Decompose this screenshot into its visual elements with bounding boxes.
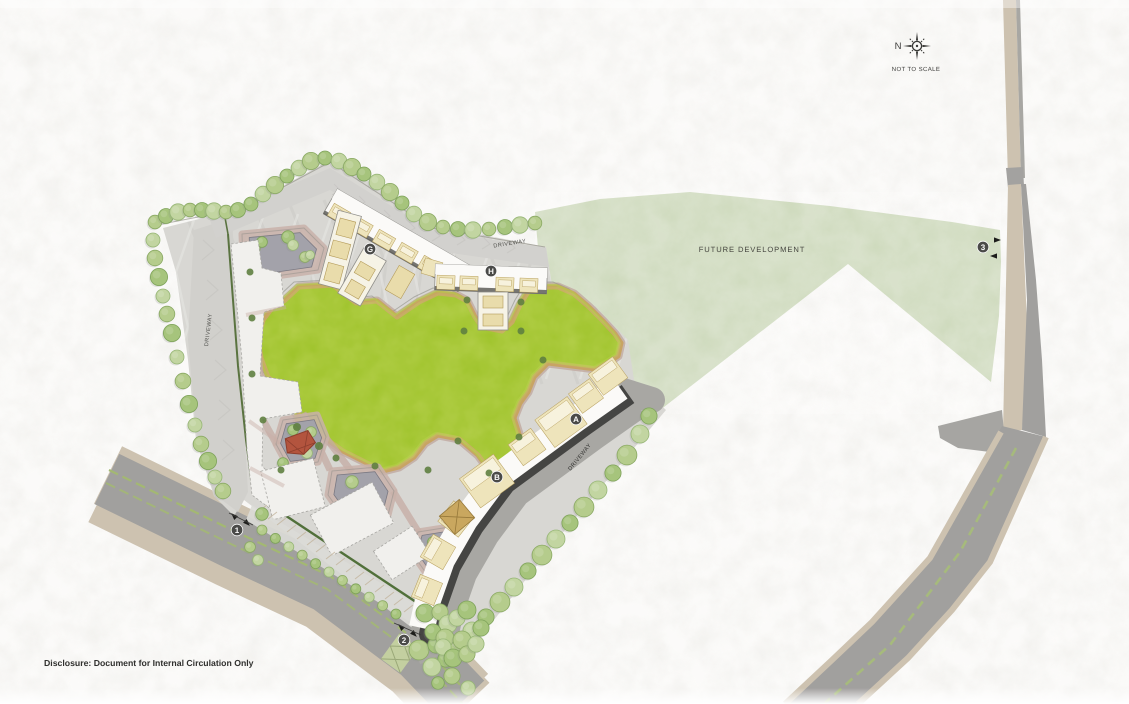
svg-text:G: G — [367, 245, 373, 254]
svg-text:1: 1 — [235, 526, 240, 535]
svg-text:A: A — [573, 415, 579, 424]
svg-text:H: H — [488, 267, 494, 276]
svg-text:FUTURE DEVELOPMENT: FUTURE DEVELOPMENT — [699, 245, 806, 254]
svg-text:B: B — [494, 473, 500, 482]
svg-text:2: 2 — [402, 636, 407, 645]
svg-text:NOT TO SCALE: NOT TO SCALE — [892, 66, 940, 73]
svg-text:3: 3 — [981, 243, 986, 252]
svg-text:Disclosure: Document for Inter: Disclosure: Document for Internal Circul… — [44, 658, 254, 668]
svg-text:N: N — [895, 41, 902, 52]
